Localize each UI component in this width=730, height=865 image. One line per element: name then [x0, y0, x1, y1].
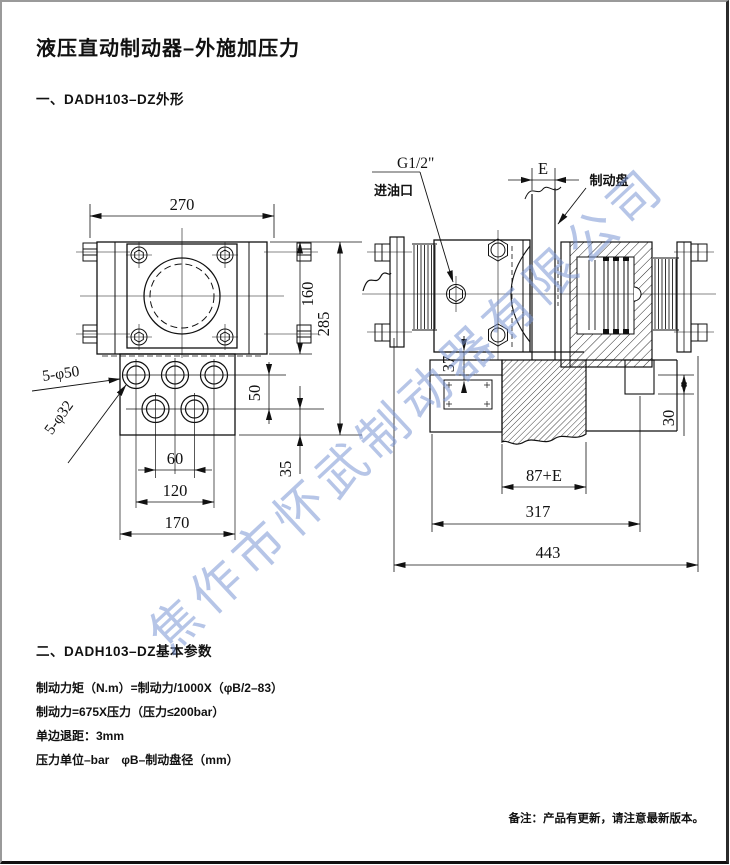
dim-disc-thickness-e: E — [538, 159, 548, 178]
dim-height-285: 285 — [314, 312, 333, 337]
param-torque-formula: 制动力矩（N.m）=制动力/1000X（φB/2–83） — [36, 676, 283, 700]
param-retract-gap: 单边退距：3mm — [36, 724, 283, 748]
dim-width-317: 317 — [526, 502, 551, 521]
label-brake-disc: 制动盘 — [589, 173, 628, 188]
dim-span-120: 120 — [163, 481, 188, 500]
param-force-formula: 制动力=675X压力（压力≤200bar） — [36, 700, 283, 724]
dim-width-443: 443 — [536, 543, 561, 562]
param-units: 压力单位–bar φB–制动盘径（mm） — [36, 748, 283, 772]
front-view-drawing: 270 60 120 170 50 35 160 285 5-φ50 5-φ32 — [32, 172, 362, 562]
dim-hub-87e: 87+E — [526, 466, 562, 485]
datasheet-page: 液压直动制动器–外施加压力 一、DADH103–DZ外形 — [0, 0, 729, 864]
dim-offset-37: 37 — [439, 356, 458, 373]
dim-offset-35: 35 — [276, 461, 295, 478]
label-holes-phi32: 5-φ32 — [41, 398, 77, 438]
dim-width-270: 270 — [170, 195, 195, 214]
label-oil-inlet: 进油口 — [374, 183, 413, 198]
dim-span-60: 60 — [167, 449, 184, 468]
footer-note: 备注：产品有更新，请注意最新版本。 — [509, 810, 705, 826]
section1-heading: 一、DADH103–DZ外形 — [36, 88, 184, 108]
dim-gap-50: 50 — [245, 385, 264, 402]
parameter-block: 制动力矩（N.m）=制动力/1000X（φB/2–83） 制动力=675X压力（… — [36, 676, 283, 772]
dim-span-170: 170 — [165, 513, 190, 532]
section2-heading: 二、DADH103–DZ基本参数 — [36, 640, 212, 660]
side-section-drawing: G1/2" 进油口 制动盘 E 37 30 87+E 317 443 — [362, 142, 722, 602]
dim-height-160: 160 — [298, 282, 317, 307]
page-title: 液压直动制动器–外施加压力 — [36, 32, 300, 61]
dim-step-30: 30 — [659, 410, 678, 427]
label-thread-g12: G1/2" — [397, 155, 434, 172]
label-holes-phi50: 5-φ50 — [41, 363, 81, 385]
